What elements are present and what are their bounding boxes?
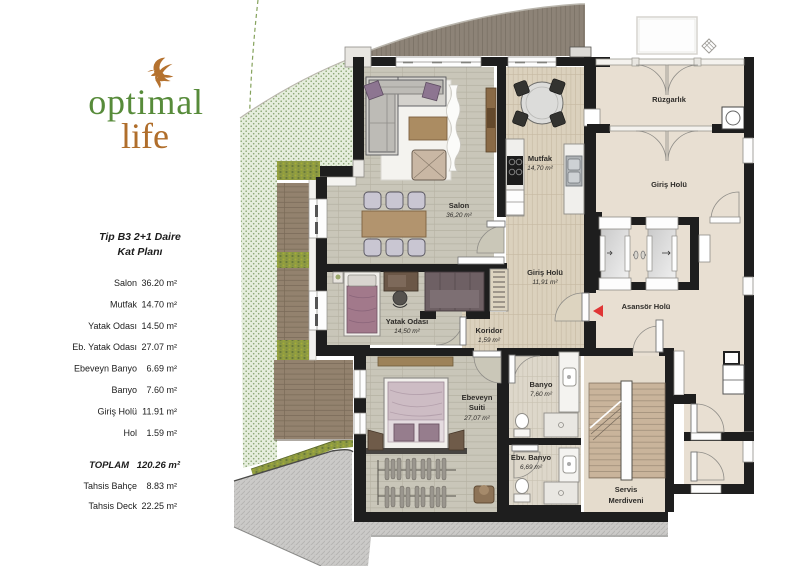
svg-text:7,60 m²: 7,60 m² <box>530 391 553 398</box>
svg-text:Giriş Holü: Giriş Holü <box>527 268 563 277</box>
svg-text:14,70 m²: 14,70 m² <box>527 165 553 172</box>
svg-text:Yatak Odası: Yatak Odası <box>88 321 137 331</box>
svg-text:Tahsis Bahçe: Tahsis Bahçe <box>83 481 137 491</box>
svg-text:6,69 m²: 6,69 m² <box>520 464 543 471</box>
svg-text:Mutfak: Mutfak <box>110 299 138 309</box>
svg-text:11.91 m²: 11.91 m² <box>142 406 177 416</box>
svg-text:36,20 m²: 36,20 m² <box>446 212 472 219</box>
svg-text:Ebeveyn Banyo: Ebeveyn Banyo <box>74 364 137 374</box>
svg-text:Hol: Hol <box>123 428 137 438</box>
svg-text:Yatak Odası: Yatak Odası <box>386 317 429 326</box>
svg-text:Ebeveyn: Ebeveyn <box>462 393 493 402</box>
svg-text:14,50 m²: 14,50 m² <box>394 328 420 335</box>
svg-text:Suiti: Suiti <box>469 403 485 412</box>
svg-text:14.50 m²: 14.50 m² <box>141 321 177 331</box>
svg-text:14.70 m²: 14.70 m² <box>141 299 177 309</box>
svg-text:6.69 m²: 6.69 m² <box>146 364 177 374</box>
svg-text:Ebv. Banyo: Ebv. Banyo <box>511 453 552 462</box>
svg-text:7.60 m²: 7.60 m² <box>146 385 177 395</box>
svg-text:Servis: Servis <box>615 485 638 494</box>
svg-text:22.25 m²: 22.25 m² <box>141 501 177 511</box>
svg-text:life: life <box>121 116 169 156</box>
svg-text:120.26 m²: 120.26 m² <box>137 460 181 471</box>
svg-text:Koridor: Koridor <box>475 326 502 335</box>
svg-text:Salon: Salon <box>114 278 137 288</box>
svg-text:Asansör Holü: Asansör Holü <box>622 302 671 311</box>
svg-text:Eb. Yatak Odası: Eb. Yatak Odası <box>72 342 137 352</box>
svg-text:Giriş Holü: Giriş Holü <box>97 406 137 416</box>
svg-text:Tahsis Deck: Tahsis Deck <box>88 501 137 511</box>
svg-text:Tip B3 2+1 Daire: Tip B3 2+1 Daire <box>99 231 181 243</box>
svg-text:Salon: Salon <box>449 201 470 210</box>
svg-text:27,07 m²: 27,07 m² <box>463 415 490 422</box>
svg-text:36.20 m²: 36.20 m² <box>141 278 177 288</box>
svg-text:1,59 m²: 1,59 m² <box>478 337 501 344</box>
svg-text:1.59 m²: 1.59 m² <box>146 428 177 438</box>
svg-text:Giriş Holü: Giriş Holü <box>651 180 687 189</box>
svg-text:Banyo: Banyo <box>530 380 553 389</box>
svg-text:8.83 m²: 8.83 m² <box>146 481 177 491</box>
svg-text:Banyo: Banyo <box>111 385 137 395</box>
svg-text:11,91 m²: 11,91 m² <box>532 279 558 286</box>
svg-text:Mutfak: Mutfak <box>528 154 553 163</box>
svg-text:TOPLAM: TOPLAM <box>89 460 130 471</box>
svg-text:Rüzgarlık: Rüzgarlık <box>652 95 687 104</box>
svg-text:Kat Planı: Kat Planı <box>118 246 163 258</box>
svg-text:27.07 m²: 27.07 m² <box>141 342 177 352</box>
svg-text:Merdiveni: Merdiveni <box>608 496 643 505</box>
